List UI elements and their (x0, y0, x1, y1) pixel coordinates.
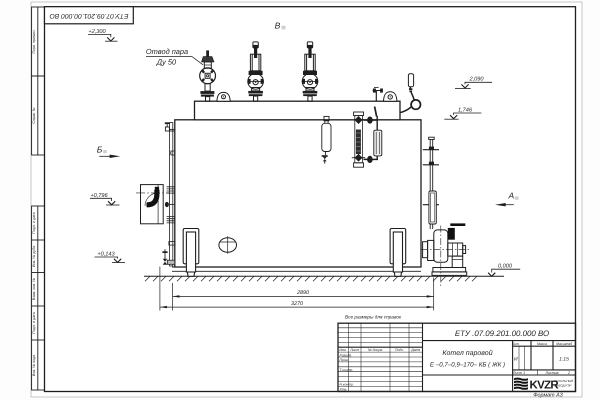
svg-text:2890: 2890 (296, 290, 309, 296)
svg-text:Отвод пара: Отвод пара (146, 47, 188, 56)
svg-text:Т.контр.: Т.контр. (340, 368, 354, 372)
svg-text:Н.контр.: Н.контр. (340, 383, 354, 387)
svg-text:1:15: 1:15 (559, 357, 569, 363)
svg-text:Лит.: Лит. (511, 342, 520, 346)
svg-text:2: 2 (567, 371, 570, 375)
svg-text:В: В (275, 21, 281, 31)
svg-text:Пров.: Пров. (340, 358, 349, 362)
svg-text:Котел паровой: Котел паровой (442, 349, 492, 357)
svg-text:Е –0,7–0,9–170– КБ ( ЖК ): Е –0,7–0,9–170– КБ ( ЖК ) (430, 362, 505, 369)
svg-text:Перв. примен.: Перв. примен. (32, 30, 36, 54)
svg-text:Взам. инв. №: Взам. инв. № (32, 278, 36, 300)
svg-text:КОТЕЛЬНЫЙ: КОТЕЛЬНЫЙ (555, 379, 574, 383)
svg-text:Б: Б (97, 145, 103, 155)
svg-text:2,090: 2,090 (469, 76, 485, 82)
svg-text:И: И (514, 357, 518, 363)
svg-text:Подп. и дата: Подп. и дата (32, 212, 36, 233)
svg-text:0,000: 0,000 (498, 263, 513, 269)
svg-text:Лист 1: Лист 1 (512, 371, 525, 375)
svg-text:Все размеры для справок: Все размеры для справок (345, 315, 402, 320)
svg-text:Изм.: Изм. (339, 348, 346, 352)
svg-text:Инв. № подл.: Инв. № подл. (32, 354, 36, 376)
svg-text:ЕТУ.07.09.201.00.000 ВО: ЕТУ.07.09.201.00.000 ВО (49, 12, 129, 19)
svg-text:А: А (507, 191, 514, 201)
svg-text:Листов: Листов (544, 371, 558, 375)
svg-text:Инв. № дубл.: Инв. № дубл. (32, 245, 36, 267)
svg-text:ЕТУ .07.09.201.00.000 ВО: ЕТУ .07.09.201.00.000 ВО (455, 329, 549, 338)
svg-text:Ду 50: Ду 50 (156, 58, 177, 67)
svg-text:3270: 3270 (291, 301, 303, 307)
svg-text:№ докум.: № докум. (368, 348, 383, 352)
svg-text:Масса: Масса (537, 342, 547, 346)
svg-text:Подп. и дата: Подп. и дата (32, 312, 36, 333)
svg-text:Масштаб: Масштаб (556, 342, 572, 346)
svg-text:Дата: Дата (410, 348, 420, 352)
svg-text:ЗАВОД РЭР: ЗАВОД РЭР (555, 384, 572, 388)
svg-text:Лист: Лист (349, 348, 359, 352)
svg-text:Утв.: Утв. (340, 388, 348, 392)
svg-text:Справ. №: Справ. № (32, 107, 36, 123)
svg-text:Разраб.: Разраб. (340, 353, 352, 357)
svg-text:Подп.: Подп. (395, 348, 404, 352)
svg-text:Формат А3: Формат А3 (533, 393, 563, 399)
